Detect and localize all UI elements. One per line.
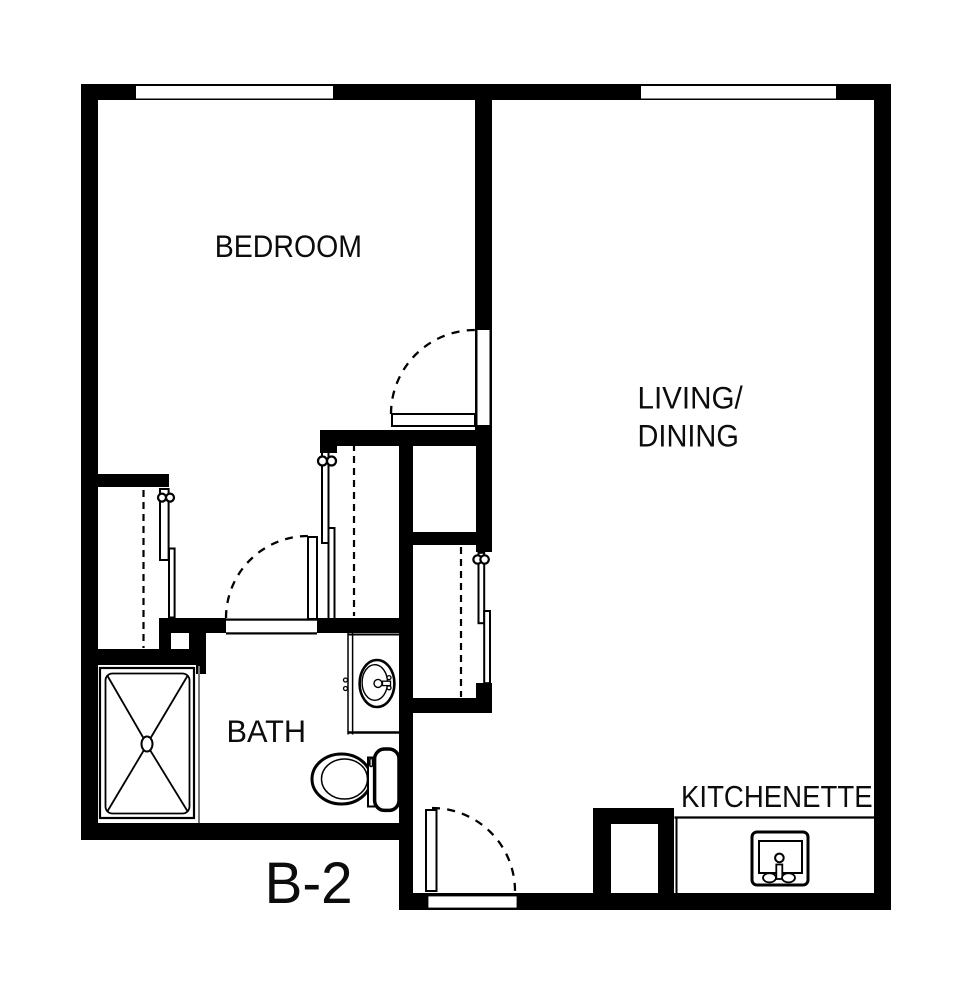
- svg-text:BATH: BATH: [227, 714, 307, 749]
- svg-text:B-2: B-2: [265, 851, 353, 916]
- svg-text:LIVING/: LIVING/: [638, 380, 744, 415]
- svg-text:BEDROOM: BEDROOM: [215, 230, 362, 265]
- svg-text:KITCHENETTE: KITCHENETTE: [681, 781, 873, 815]
- svg-text:DINING: DINING: [638, 419, 739, 453]
